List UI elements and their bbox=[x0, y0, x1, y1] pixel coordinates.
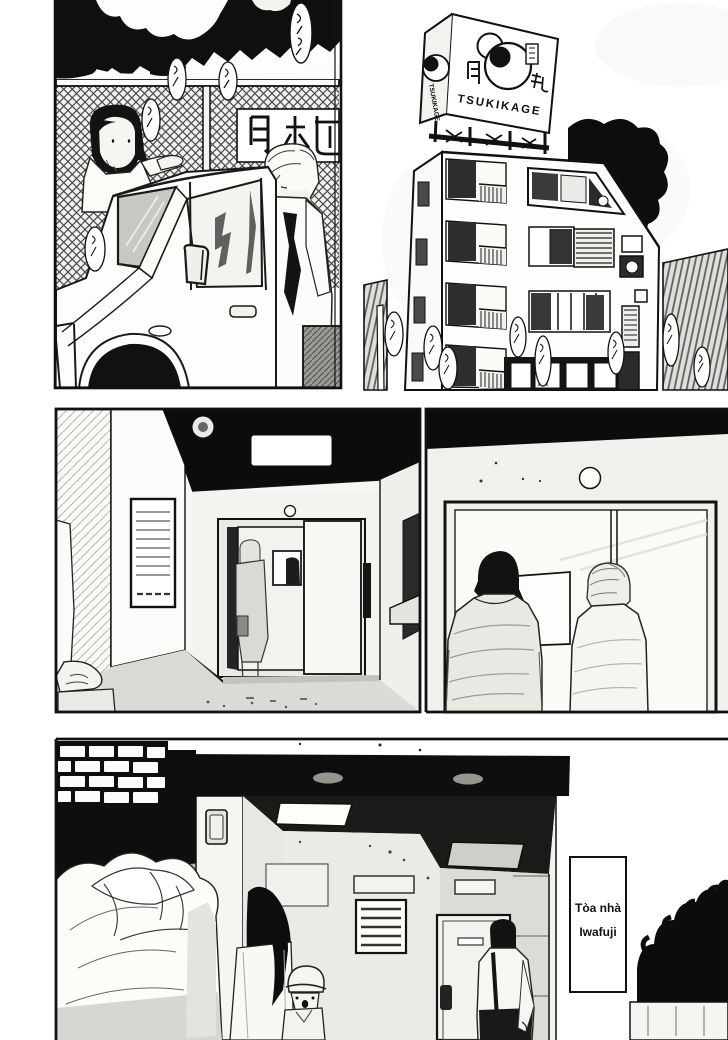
svg-text:Tòa nhà: Tòa nhà bbox=[575, 901, 621, 915]
svg-text:Iwafuji: Iwafuji bbox=[579, 925, 616, 939]
